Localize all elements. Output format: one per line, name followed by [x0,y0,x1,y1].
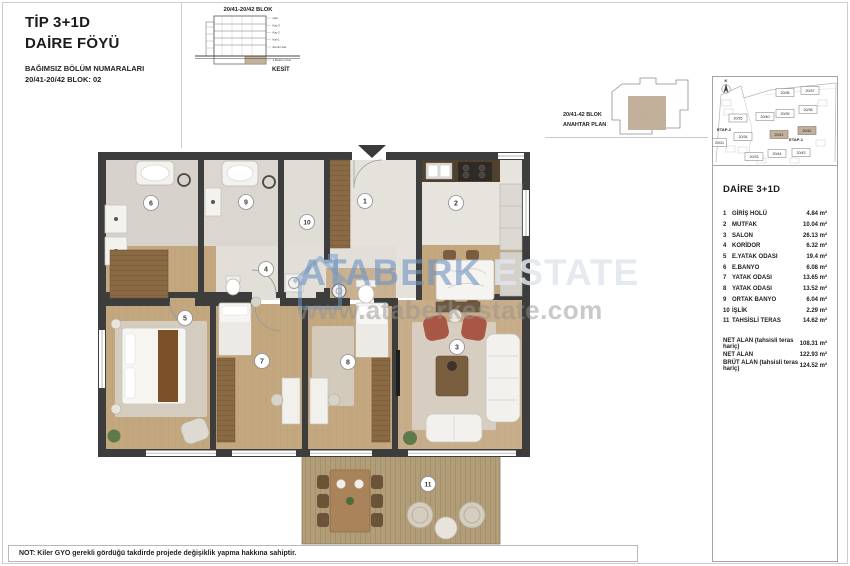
wardrobe [217,358,235,442]
wardrobe [372,358,390,442]
stove-icon [458,162,492,181]
room-row: 5E.YATAK ODASI19.4 m² [723,252,827,263]
section-building [195,16,300,64]
fridge-icon [500,252,522,296]
koridor-closet [110,250,168,298]
pillow [359,306,385,315]
svg-text:3: 3 [455,345,459,352]
chair [271,394,283,406]
desk [282,378,300,424]
svg-text:1: 1 [363,199,367,206]
footer-note: NOT: Kiler GYO gerekli gördüğü takdirde … [19,546,637,561]
site-block-label: 20/37 [806,89,815,93]
armchair-red [460,314,488,342]
section-caption: KESİT [272,66,290,73]
chair [317,494,329,508]
north-arrow-icon: K [722,78,730,93]
room-number-badge: 10 [300,215,315,230]
header: TİP 3+1D DAİRE FÖYÜ BAĞIMSIZ BÖLÜM NUMAR… [25,12,144,85]
closet [330,160,350,248]
sheet-title: DAİRE FÖYÜ [25,33,144,54]
floor-label: Çatı [273,16,279,20]
tray [447,361,457,371]
wicker-chair [407,502,433,528]
basin-icon [332,284,346,298]
toilet-icon [226,279,240,295]
site-block-label: 20/41 [775,133,784,137]
floor-label: Kat-2 [273,31,281,35]
chair [317,475,329,489]
site-block-label: 20/31 [715,141,724,145]
plant-icon [108,430,121,443]
tv-icon [396,350,400,396]
unit-type-title: TİP 3+1D [25,12,144,33]
washer-icon [285,274,303,292]
unit-panel-title: DAİRE 3+1D [723,184,837,195]
key-plan-outline [612,78,688,134]
total-row: BRÜT ALAN (tahsisli teras hariç)124.52 m… [723,361,827,372]
key-plan-label: 20/41-42 BLOK ANAHTAR PLAN [563,112,606,128]
site-block-label: 20/36 [781,91,790,95]
site-plan: K [712,76,838,166]
floor-label: 1.Bodrum Kat [273,58,292,62]
section-highlight-unit [245,56,266,64]
chair [371,494,383,508]
footer-note-box: NOT: Kiler GYO gerekli gördüğü takdirde … [8,545,638,562]
pillow [222,306,248,315]
floor-plan: 1 2 3 4 5 6 7 8 9 10 11 [90,140,550,552]
nightstand [111,319,121,329]
unit-panel: DAİRE 3+1D 1GİRİŞ HOLÜ4.84 m² 2MUTFAK10.… [712,166,838,562]
etap2-label: ETAP-2 [717,127,732,132]
floor-label: Zemin Kat [273,45,287,49]
totals: NET ALAN (tahsisli teras hariç)108.31 m²… [723,339,827,372]
site-block-label: 20/39 [781,112,790,116]
room-number-badge: 1 [358,194,373,209]
section-drawing: 20/41-20/42 BLOK [190,2,305,77]
bed-runner [158,330,178,402]
chair [328,394,340,406]
kitchen-cabinets [500,184,522,250]
svg-text:7: 7 [260,359,264,366]
blanket [219,322,251,355]
svg-text:10: 10 [303,220,311,227]
room-row: 1GİRİŞ HOLÜ4.84 m² [723,209,827,220]
header-divider [181,2,182,148]
room-number-badge: 4 [259,262,274,277]
room-number-badge: 5 [178,311,193,326]
key-plan-line2: ANAHTAR PLAN [563,122,606,128]
room-number-badge: 6 [144,196,159,211]
room-number-badge: 3 [450,340,465,355]
room-row: 3SALON26.13 m² [723,230,827,241]
room-row: 2MUTFAK10.04 m² [723,220,827,231]
site-block-label: 20/33 [750,155,759,159]
room-list: 1GİRİŞ HOLÜ4.84 m² 2MUTFAK10.04 m² 3SALO… [723,209,827,327]
site-block-label: 20/38 [804,108,813,112]
section-title: 20/41-20/42 BLOK [224,7,274,13]
room-number-badge: 8 [341,355,356,370]
key-plan: 20/41-42 BLOK ANAHTAR PLAN [545,70,710,140]
site-block-label: 20/34 [739,135,748,139]
round-table [435,517,457,539]
room-number-badge: 2 [449,196,464,211]
key-plan-line1: 20/41-42 BLOK [563,112,602,118]
chair [466,250,479,260]
pillow [125,334,135,364]
room-row: 4KORİDOR6.32 m² [723,241,827,252]
svg-text:2: 2 [454,201,458,208]
room-number-badge: 11 [421,477,436,492]
etap1-label: ETAP-1 [789,137,804,142]
plan-sheet: TİP 3+1D DAİRE FÖYÜ BAĞIMSIZ BÖLÜM NUMAR… [0,0,850,566]
room-row: 10İŞLİK2.29 m² [723,305,827,316]
block-label: 20/41-20/42 BLOK: 02 [25,74,144,85]
wicker-chair [459,502,485,528]
svg-text:8: 8 [346,360,350,367]
room-number-badge: 9 [239,195,254,210]
chair [317,513,329,527]
site-block-label: 20/42 [803,129,812,133]
room-number-badge: 7 [255,354,270,369]
chair [443,250,456,260]
nightstand [111,404,121,414]
section-floor-labels: Çatı Kat-3 Kat-2 Kat-1 Zemin Kat 1.Bodru… [266,16,291,62]
room-islik [285,274,303,292]
nightstand [251,297,261,307]
room-row: 6E.BANYO6.08 m² [723,262,827,273]
svg-text:9: 9 [244,200,248,207]
chair [371,513,383,527]
floor-label: Kat-1 [273,38,281,42]
site-block-label: 20/44 [773,152,782,156]
svg-text:6: 6 [149,201,153,208]
north-label: K [725,78,728,83]
total-row: NET ALAN (tahsisli teras hariç)108.31 m² [723,339,827,350]
pillow [125,368,135,398]
site-block-label: 20/43 [797,151,806,155]
blanket [356,324,388,357]
room-row: 11TAHSİSLİ TERAS14.62 m² [723,316,827,327]
room-row: 8YATAK ODASI13.52 m² [723,284,827,295]
room-row: 9ORTAK BANYO6.04 m² [723,295,827,306]
svg-text:11: 11 [425,482,432,489]
chair [371,475,383,489]
site-block-label: 20/35 [734,117,743,121]
floor-label: Kat-3 [273,24,281,28]
toilet-icon [358,285,374,303]
desk [310,378,328,424]
site-block-label: 20/40 [761,115,770,119]
svg-text:4: 4 [264,267,268,274]
plant-icon [403,431,417,445]
room-row: 7YATAK ODASI13.65 m² [723,273,827,284]
dining-island [436,260,494,300]
numbers-note: BAĞIMSIZ BÖLÜM NUMARALARI [25,63,144,74]
side-table [449,310,462,323]
svg-text:5: 5 [183,316,187,323]
total-row: NET ALAN122.93 m² [723,350,827,361]
